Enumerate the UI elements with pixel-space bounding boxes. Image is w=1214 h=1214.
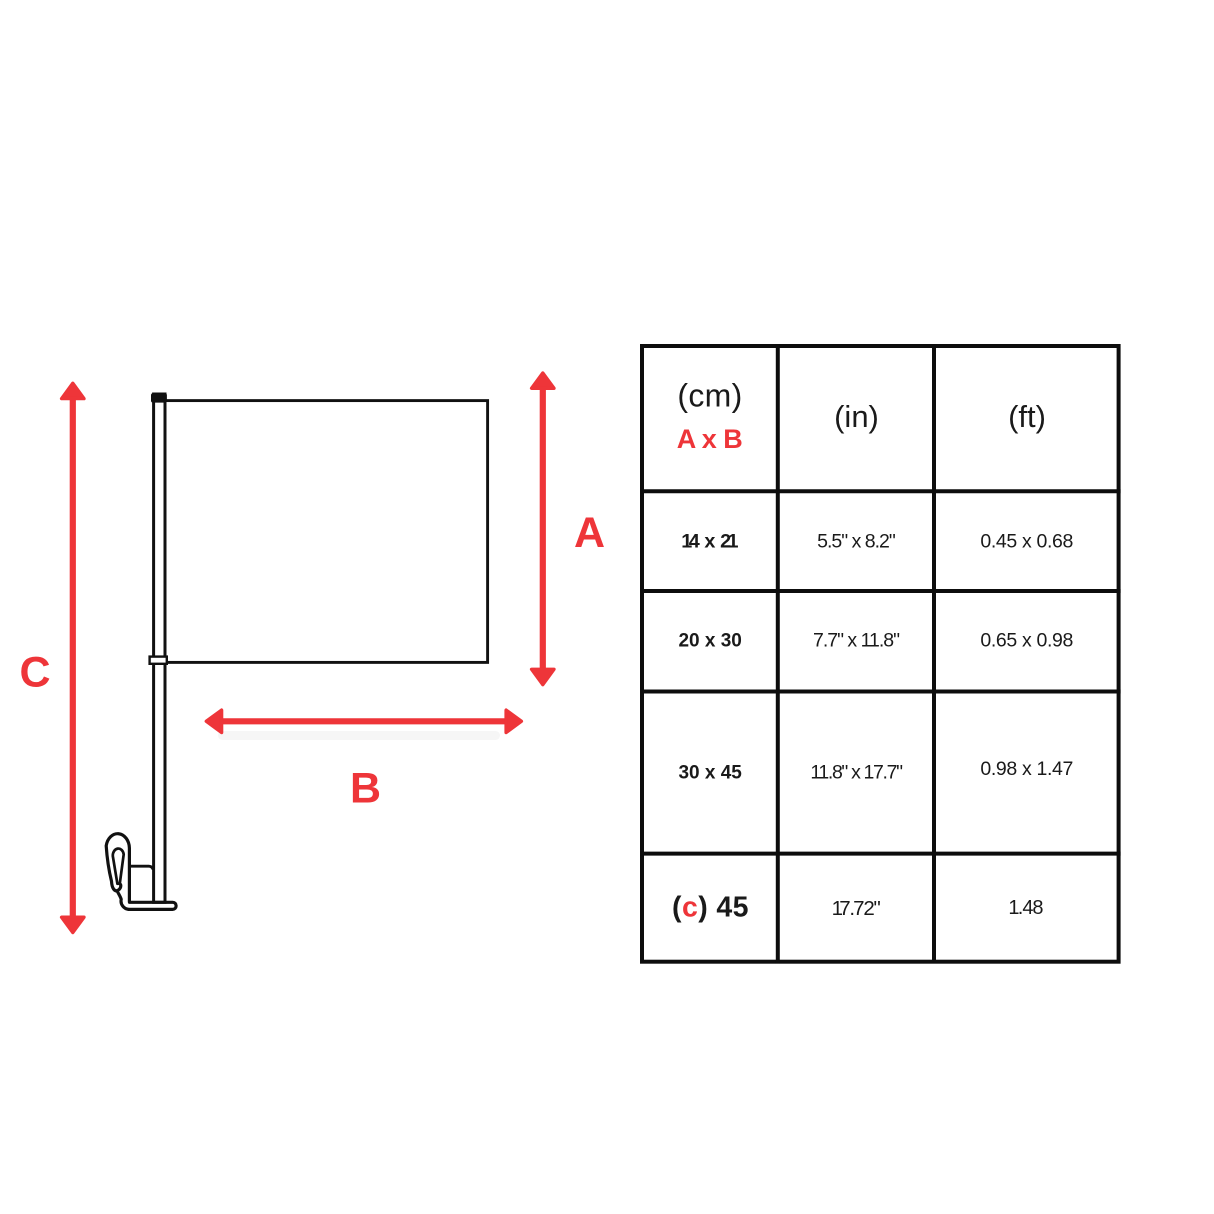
svg-text:(ft): (ft) — [1008, 399, 1046, 434]
svg-text:17.72": 17.72" — [832, 897, 881, 920]
svg-text:14 x 21: 14 x 21 — [681, 531, 738, 553]
svg-text:20 x 30: 20 x 30 — [678, 630, 741, 651]
svg-text:A: A — [574, 509, 605, 557]
svg-text:0.45 x 0.68: 0.45 x 0.68 — [980, 531, 1073, 553]
svg-text:B: B — [350, 765, 381, 813]
svg-text:7.7" x 11.8": 7.7" x 11.8" — [813, 629, 900, 651]
svg-text:(in): (in) — [834, 399, 879, 434]
svg-text:1.48: 1.48 — [1008, 897, 1043, 919]
svg-text:(cm): (cm) — [677, 378, 742, 414]
svg-text:A x B: A x B — [677, 424, 743, 454]
svg-text:5.5" x 8.2": 5.5" x 8.2" — [817, 531, 896, 553]
svg-text:C: C — [19, 649, 50, 697]
svg-text:30 x 45: 30 x 45 — [678, 763, 742, 784]
svg-text:0.65 x 0.98: 0.65 x 0.98 — [980, 629, 1073, 651]
svg-text:0.98 x 1.47: 0.98 x 1.47 — [980, 758, 1073, 780]
svg-text:(c) 45: (c) 45 — [672, 892, 749, 924]
svg-text:11.8" x 17.7": 11.8" x 17.7" — [810, 762, 903, 784]
